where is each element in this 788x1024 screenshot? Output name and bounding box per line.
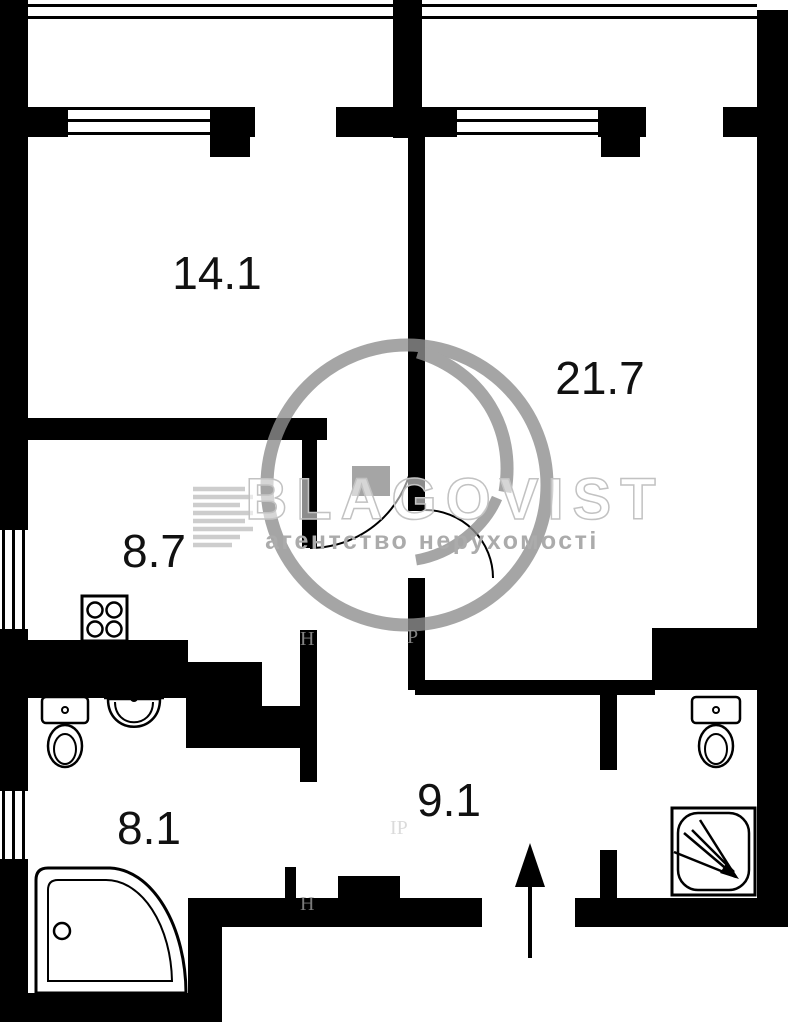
window-icon [457, 107, 598, 135]
wall-kitchen-bottom [28, 640, 188, 698]
window-icon [67, 107, 210, 135]
wall-bottom-left-band [188, 898, 482, 927]
wall-top-corner-left [28, 107, 68, 137]
wall-left-top [0, 0, 28, 527]
floor-plan: BLAGOVIST агентство нерухомості Н Р Н ІР… [0, 0, 788, 1024]
room-area-label-8-7: 8.7 [122, 525, 186, 577]
wall-top-block-1-step [210, 137, 250, 157]
wall-top-block-2 [598, 107, 646, 137]
watermark-fragment: Н [300, 893, 314, 915]
wall-left-mid [0, 632, 28, 788]
wall-band-right [415, 680, 655, 695]
wall-right-outer [757, 10, 788, 927]
shower-icon [672, 808, 755, 895]
watermark-brand-text: BLAGOVIST [245, 467, 664, 532]
window-icon [0, 527, 28, 632]
room-area-label-21-7: 21.7 [555, 352, 645, 404]
wall-wc-stub-upper [600, 690, 617, 770]
wall-top-right [723, 107, 759, 137]
wall-step-block [186, 662, 262, 748]
wall-block-right [652, 628, 757, 690]
balcony-railing [28, 4, 757, 19]
sink-icon [104, 693, 164, 727]
wall-top-block-2-step [601, 137, 640, 157]
watermark-fragment: Н [300, 628, 314, 650]
watermark-emblem-stripes [193, 489, 253, 545]
room-area-label-14-1: 14.1 [172, 247, 262, 299]
entrance-arrow-icon [515, 843, 545, 958]
wall-bottom-bump-2 [338, 876, 400, 898]
window-icon [0, 788, 28, 862]
watermark-fragment: ІР [390, 817, 408, 839]
watermark-fragment: Р [407, 626, 418, 648]
wall-step-band [256, 706, 317, 748]
wall-wc-stub-lower [600, 850, 617, 898]
stove-icon [82, 596, 127, 641]
corner-bathtub-icon [36, 868, 186, 993]
wall-top-block-1 [210, 107, 255, 137]
toilet-icon [692, 697, 740, 767]
wall-bottom-bump-1 [285, 867, 296, 898]
watermark-tagline-text: агентство нерухомості [265, 527, 599, 555]
room-area-label-9-1: 9.1 [417, 774, 481, 826]
wall-bottom-right-band [575, 898, 788, 927]
toilet-icon [42, 697, 88, 767]
wall-balcony-divider [393, 0, 422, 138]
room-area-label-8-1: 8.1 [117, 802, 181, 854]
wall-central-upper [408, 137, 425, 511]
